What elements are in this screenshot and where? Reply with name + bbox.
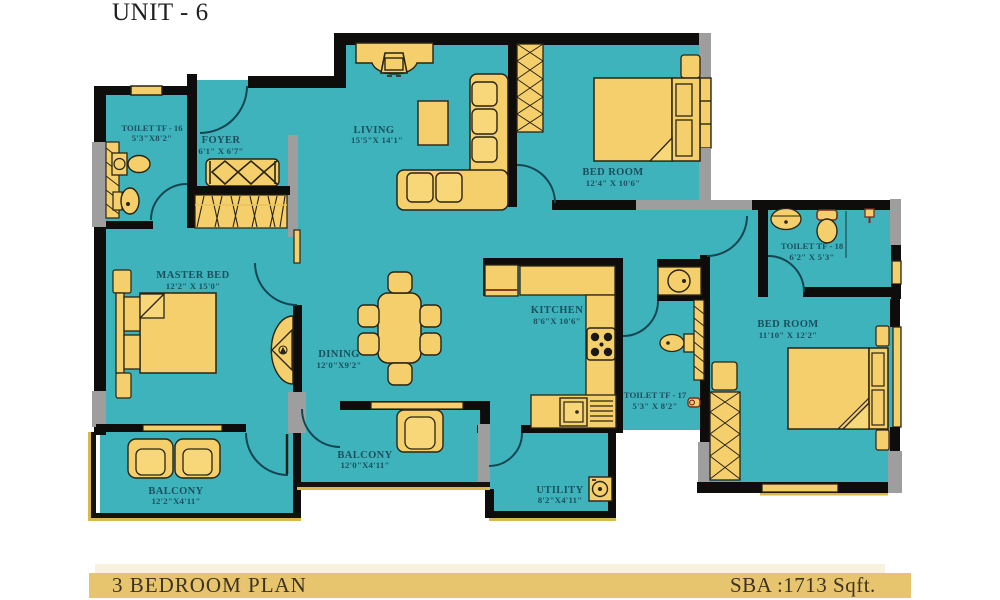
svg-text:TOILET TF - 17: TOILET TF - 17 [624, 390, 687, 400]
svg-text:8'2"X4'11": 8'2"X4'11" [538, 495, 583, 505]
svg-text:12'4" X 10'6": 12'4" X 10'6" [586, 178, 640, 188]
svg-text:BED ROOM: BED ROOM [582, 167, 643, 178]
svg-text:15'5"X 14'1": 15'5"X 14'1" [351, 135, 403, 145]
svg-text:BED ROOM: BED ROOM [757, 319, 818, 330]
svg-text:12'0"X4'11": 12'0"X4'11" [340, 460, 389, 470]
svg-text:6'2" X 5'3": 6'2" X 5'3" [789, 252, 834, 262]
svg-text:DINING: DINING [318, 349, 360, 360]
svg-text:TOILET TF - 18: TOILET TF - 18 [781, 241, 844, 251]
svg-text:11'10" X 12'2": 11'10" X 12'2" [759, 330, 818, 340]
svg-text:TOILET TF - 16: TOILET TF - 16 [121, 123, 183, 133]
svg-text:5'3"X8'2": 5'3"X8'2" [132, 133, 172, 143]
svg-text:12'0"X9'2": 12'0"X9'2" [316, 360, 361, 370]
svg-text:SBA :1713 Sqft.: SBA :1713 Sqft. [730, 573, 876, 597]
svg-text:8'6"X 10'6": 8'6"X 10'6" [533, 316, 580, 326]
svg-text:FOYER: FOYER [202, 135, 241, 146]
svg-text:12'2" X 15'0": 12'2" X 15'0" [166, 281, 220, 291]
svg-text:3 BEDROOM PLAN: 3 BEDROOM PLAN [112, 573, 307, 597]
svg-text:KITCHEN: KITCHEN [531, 305, 583, 316]
svg-text:MASTER BED: MASTER BED [156, 270, 229, 281]
svg-text:5'3" X 8'2": 5'3" X 8'2" [632, 401, 677, 411]
svg-text:6'1" X 6'7": 6'1" X 6'7" [198, 146, 243, 156]
svg-text:UNIT - 6: UNIT - 6 [112, 0, 209, 26]
svg-text:12'2"X4'11": 12'2"X4'11" [151, 496, 200, 506]
